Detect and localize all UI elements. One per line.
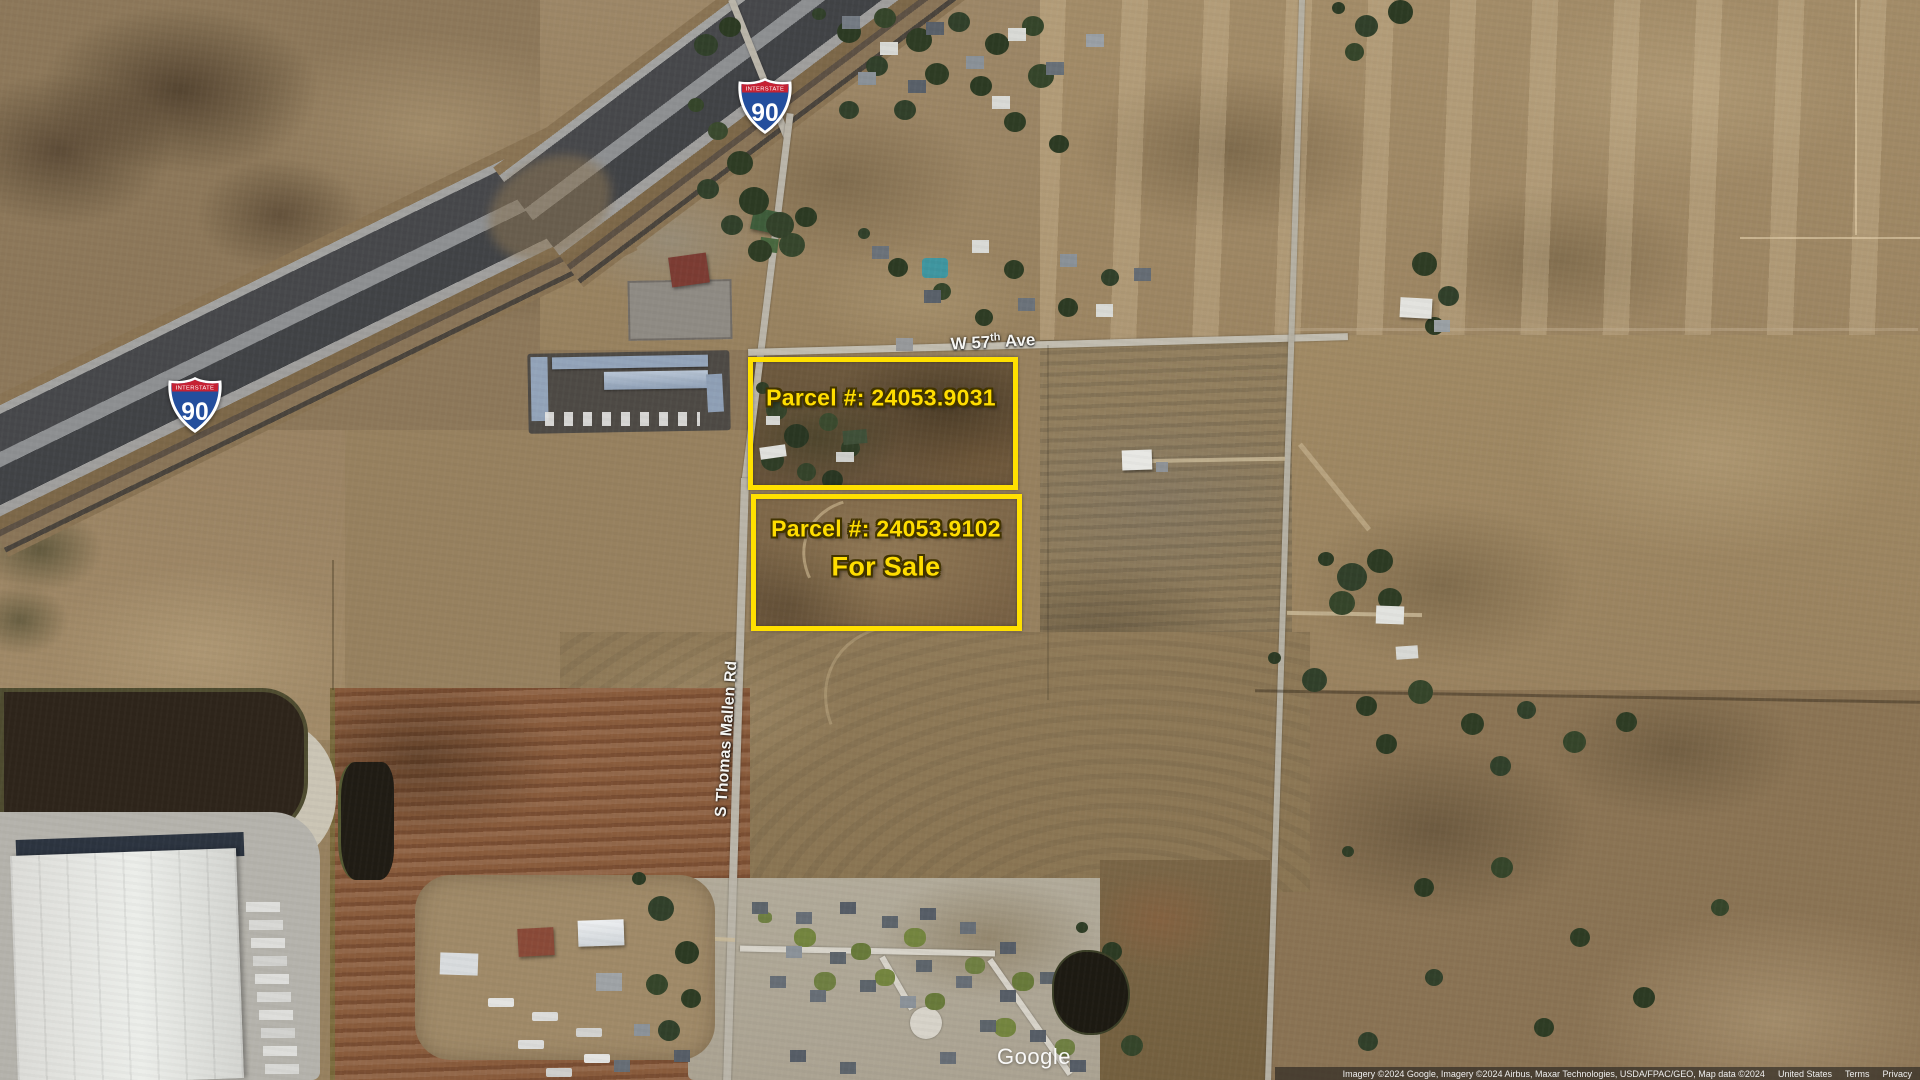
parcel1-outline [748, 357, 1018, 490]
w57-superscript: th [990, 331, 1001, 344]
storage-building-east [706, 374, 724, 413]
shed-right-mid [1156, 462, 1168, 472]
trees-w57-row [858, 228, 870, 239]
road-label-w57th-ave: W 57th Ave [950, 329, 1036, 354]
boundary-far-right-vertical [1855, 0, 1857, 235]
field-top-right [1040, 0, 1920, 345]
farm-white-building [578, 919, 625, 947]
parcel1-label: Parcel #: 24053.9031 [766, 385, 996, 412]
shed-top-right [1434, 320, 1450, 332]
shed-east-farm-1 [1376, 606, 1405, 625]
street-cul-de-sac [910, 1007, 942, 1039]
i90-shield-icon-top: INTERSTATE 90 [737, 76, 793, 136]
w57-suffix: Ave [1000, 330, 1036, 351]
trees-east-farm [1318, 552, 1334, 566]
storage-building-long-mid [604, 370, 708, 390]
trees-right-boundary [1268, 652, 1281, 664]
shield-number-text: 90 [181, 399, 208, 426]
shield-number-text: 90 [751, 100, 778, 127]
attribution-bar: Imagery ©2024 Google, Imagery ©2024 Airb… [1275, 1067, 1920, 1080]
w57-prefix: W 57 [950, 332, 991, 353]
google-watermark[interactable]: Google [997, 1044, 1071, 1070]
trees-bottom-farm [632, 872, 646, 885]
pond-neighborhood [1052, 950, 1130, 1035]
green-roof-shed [759, 237, 779, 253]
warehouse-truck-trailers [246, 902, 280, 912]
houses-top-right [842, 16, 860, 29]
neighborhood-houses [752, 902, 768, 914]
shield-header-text: INTERSTATE [746, 86, 785, 92]
farm-trailers [488, 998, 514, 1007]
pond-west [338, 762, 394, 880]
trees-right-low [1342, 846, 1354, 857]
trees-pond-side [1076, 922, 1088, 933]
storage-parked-rvs [545, 412, 700, 426]
red-roof-building [668, 253, 710, 288]
gravel-pads [627, 279, 732, 341]
parcel2-label: Parcel #: 24053.9102 [771, 516, 1001, 543]
boundary-left-vertical [332, 560, 334, 690]
attribution-region: United States [1778, 1069, 1832, 1079]
trees-along-road [688, 98, 704, 112]
for-sale-label: For Sale [832, 552, 941, 583]
farm-red-barn [517, 927, 554, 957]
farm-white-shed [440, 952, 479, 975]
swimming-pool [922, 258, 948, 278]
field-right-bottom [1255, 690, 1920, 1080]
trees-top-right [812, 8, 826, 20]
farm-gray-shed [596, 973, 622, 991]
privacy-link[interactable]: Privacy [1882, 1069, 1912, 1079]
white-building-right-mid [1122, 449, 1153, 470]
shed-east-farm-2 [1396, 645, 1419, 660]
houses-w57-row [872, 246, 889, 259]
boundary-center-vertical [1047, 345, 1049, 700]
field-neighborhood-east [1100, 860, 1270, 1080]
warehouse-building [10, 848, 244, 1080]
barn-top-right [1399, 297, 1432, 319]
field-plow-edge [330, 688, 335, 1080]
field-right-east [1292, 335, 1920, 705]
boundary-far-right-horizontal [1740, 237, 1920, 239]
i90-shield-icon-left: INTERSTATE 90 [167, 375, 223, 435]
trees-top-right-road [1332, 2, 1345, 14]
shield-header-text: INTERSTATE [176, 385, 215, 391]
satellite-map[interactable]: Parcel #: 24053.9031 Parcel #: 24053.910… [0, 0, 1920, 1080]
road-w57th-east-track [1290, 328, 1918, 331]
terms-link[interactable]: Terms [1845, 1069, 1870, 1079]
attribution-imagery: Imagery ©2024 Google, Imagery ©2024 Airb… [1343, 1069, 1765, 1079]
